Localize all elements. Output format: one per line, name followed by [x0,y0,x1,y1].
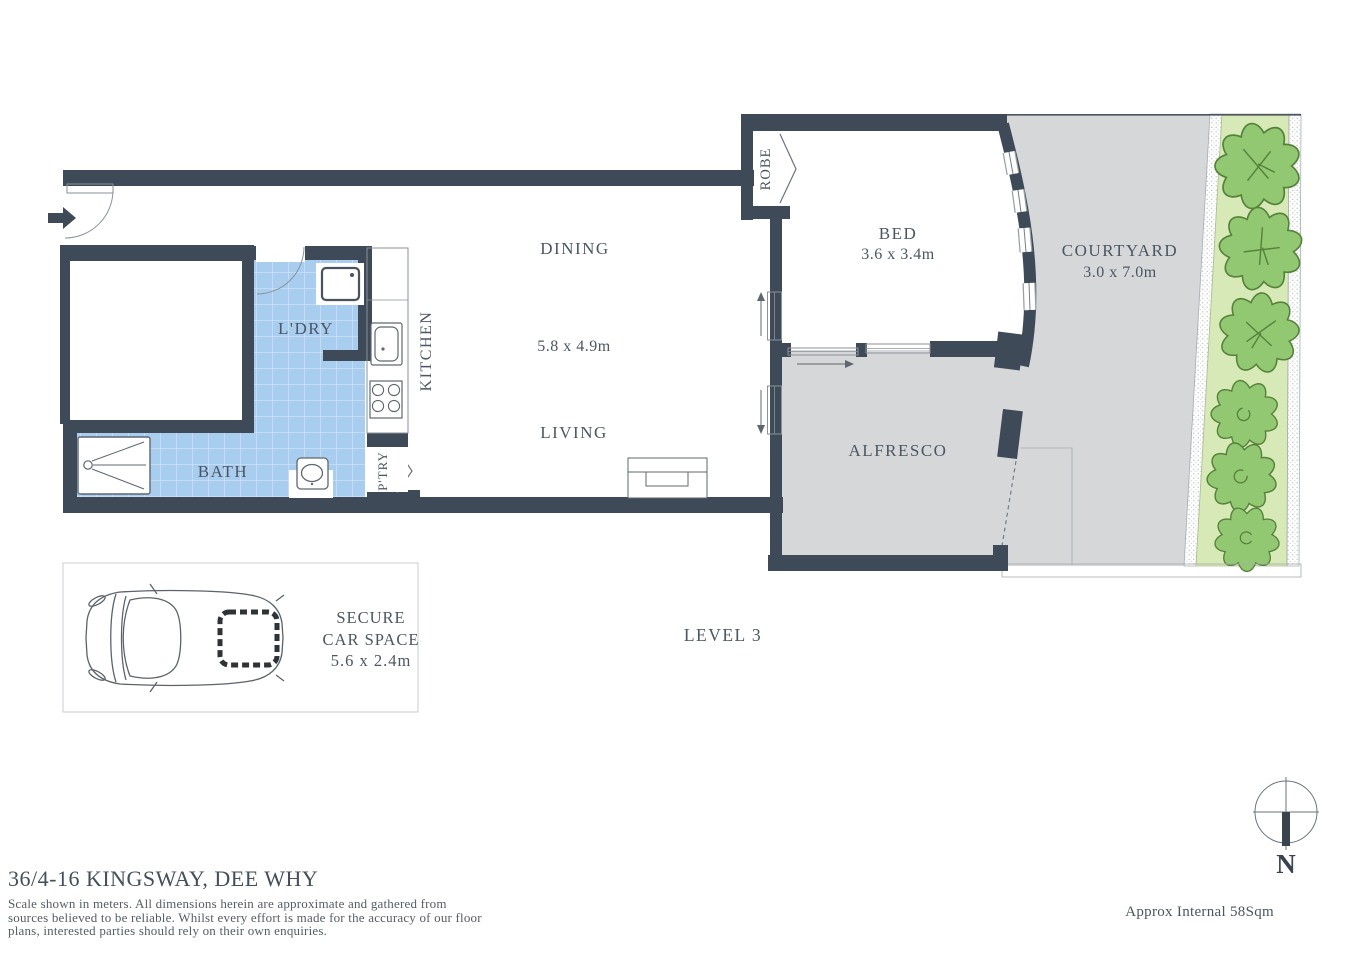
footer: 36/4-16 KINGSWAY, DEE WHY Scale shown in… [8,866,1274,938]
living-dining-dims: 5.8 x 4.9m [537,338,611,355]
car-space-label-line1: SECURE [336,608,405,627]
courtyard-label: COURTYARD [1062,241,1178,260]
disclaimer-line1: Scale shown in meters. All dimensions he… [8,896,447,911]
level-label: LEVEL 3 [684,625,762,645]
courtyard-dims: 3.0 x 7.0m [1083,264,1157,281]
dining-label: DINING [540,239,609,258]
car-space: SECURE CAR SPACE 5.6 x 2.4m [63,563,419,712]
living-label: LIVING [540,423,608,442]
laundry-label: L'DRY [278,319,334,338]
entry-door-swing-icon [65,184,113,238]
shower-icon [78,437,150,494]
compass-north-label: N [1276,849,1296,879]
tv-unit-icon [628,458,707,498]
car-space-label-line2: CAR SPACE [323,630,420,649]
kitchen-label: KITCHEN [418,311,435,392]
alfresco-label: ALFRESCO [849,441,948,460]
area-note: Approx Internal 58Sqm [1125,904,1274,920]
entry-arrow-icon [48,207,76,229]
sink-icon [371,323,402,365]
address-title: 36/4-16 KINGSWAY, DEE WHY [8,866,318,891]
washing-machine-icon [316,263,364,305]
bath-label: BATH [198,462,248,481]
compass-icon: N [1253,777,1319,879]
bed-dims: 3.6 x 3.4m [861,246,935,263]
floorplan-page: DINING 5.8 x 4.9m LIVING KITCHEN L'DRY B… [0,0,1357,960]
bed-label: BED [879,224,918,243]
car-space-dims: 5.6 x 2.4m [331,651,412,670]
pantry-label: P'TRY [375,451,390,491]
courtyard-area [1003,114,1210,566]
stove-icon [370,381,402,418]
floorplan-canvas: DINING 5.8 x 4.9m LIVING KITCHEN L'DRY B… [0,0,1357,960]
robe-label: ROBE [758,148,774,191]
car-icon [86,584,284,692]
disclaimer-line3: plans, interested parties should rely on… [8,923,327,938]
